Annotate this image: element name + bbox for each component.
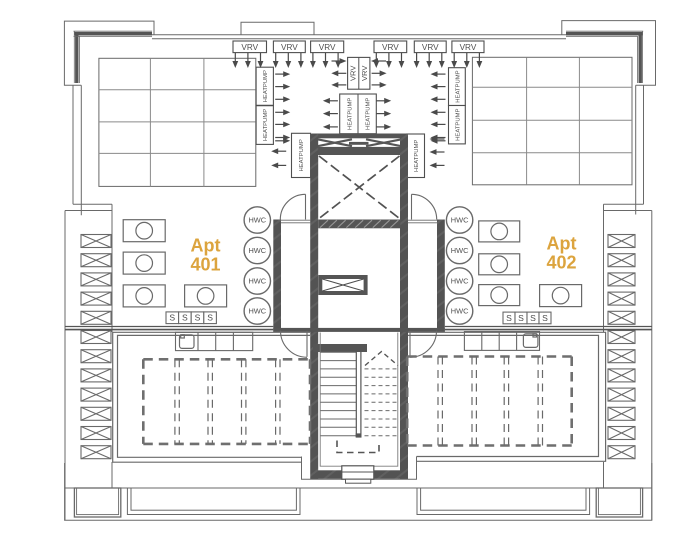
svg-text:HWC: HWC <box>248 246 266 255</box>
svg-text:HEATPUMP: HEATPUMP <box>414 140 420 172</box>
svg-text:S: S <box>169 313 175 323</box>
svg-text:402: 402 <box>546 253 576 273</box>
svg-text:HWC: HWC <box>248 307 266 316</box>
svg-text:HWC: HWC <box>451 307 469 316</box>
svg-text:HWC: HWC <box>248 216 266 225</box>
svg-text:HEATPUMP: HEATPUMP <box>455 70 461 102</box>
svg-text:S: S <box>530 313 536 323</box>
svg-text:HEATPUMP: HEATPUMP <box>263 109 269 141</box>
svg-text:HWC: HWC <box>451 277 469 286</box>
svg-text:S: S <box>207 313 213 323</box>
svg-text:HEATPUMP: HEATPUMP <box>365 98 371 130</box>
svg-text:401: 401 <box>190 255 220 275</box>
svg-text:Apt: Apt <box>547 234 577 254</box>
svg-text:VRV: VRV <box>349 65 358 81</box>
svg-text:VRV: VRV <box>319 43 336 52</box>
svg-text:HEATPUMP: HEATPUMP <box>299 139 305 171</box>
svg-text:HWC: HWC <box>248 277 266 286</box>
svg-text:VRV: VRV <box>422 43 439 52</box>
svg-text:Apt: Apt <box>191 236 221 256</box>
svg-text:S: S <box>506 313 512 323</box>
svg-text:HWC: HWC <box>451 216 469 225</box>
svg-text:VRV: VRV <box>460 43 477 52</box>
svg-text:S: S <box>518 313 524 323</box>
svg-text:VRV: VRV <box>382 43 399 52</box>
svg-text:HEATPUMP: HEATPUMP <box>263 70 269 102</box>
svg-text:VRV: VRV <box>241 43 258 52</box>
svg-text:S: S <box>542 313 548 323</box>
svg-text:HEATPUMP: HEATPUMP <box>455 108 461 140</box>
svg-text:VRV: VRV <box>281 43 298 52</box>
svg-text:HEATPUMP: HEATPUMP <box>347 98 353 130</box>
svg-text:VRV: VRV <box>360 65 369 81</box>
svg-text:HWC: HWC <box>451 246 469 255</box>
svg-text:S: S <box>195 313 201 323</box>
svg-text:S: S <box>182 313 188 323</box>
